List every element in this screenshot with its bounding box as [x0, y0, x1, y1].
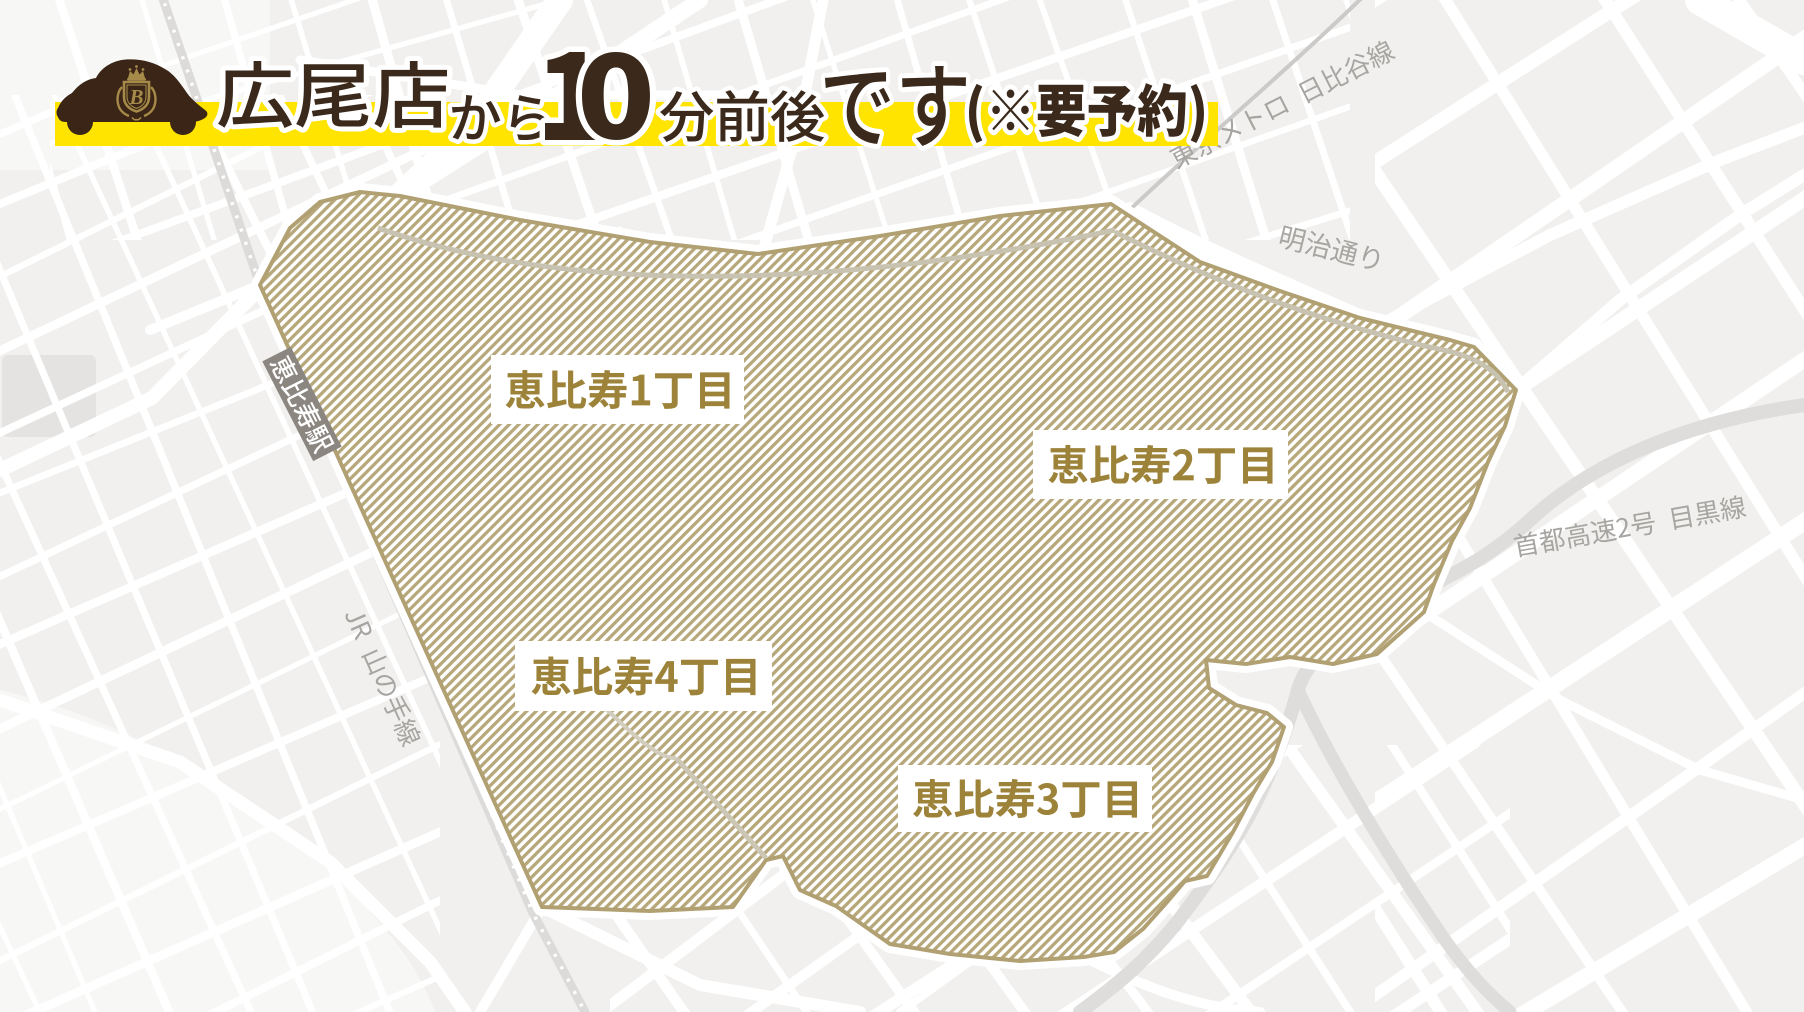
svg-text:B: B	[128, 85, 143, 109]
